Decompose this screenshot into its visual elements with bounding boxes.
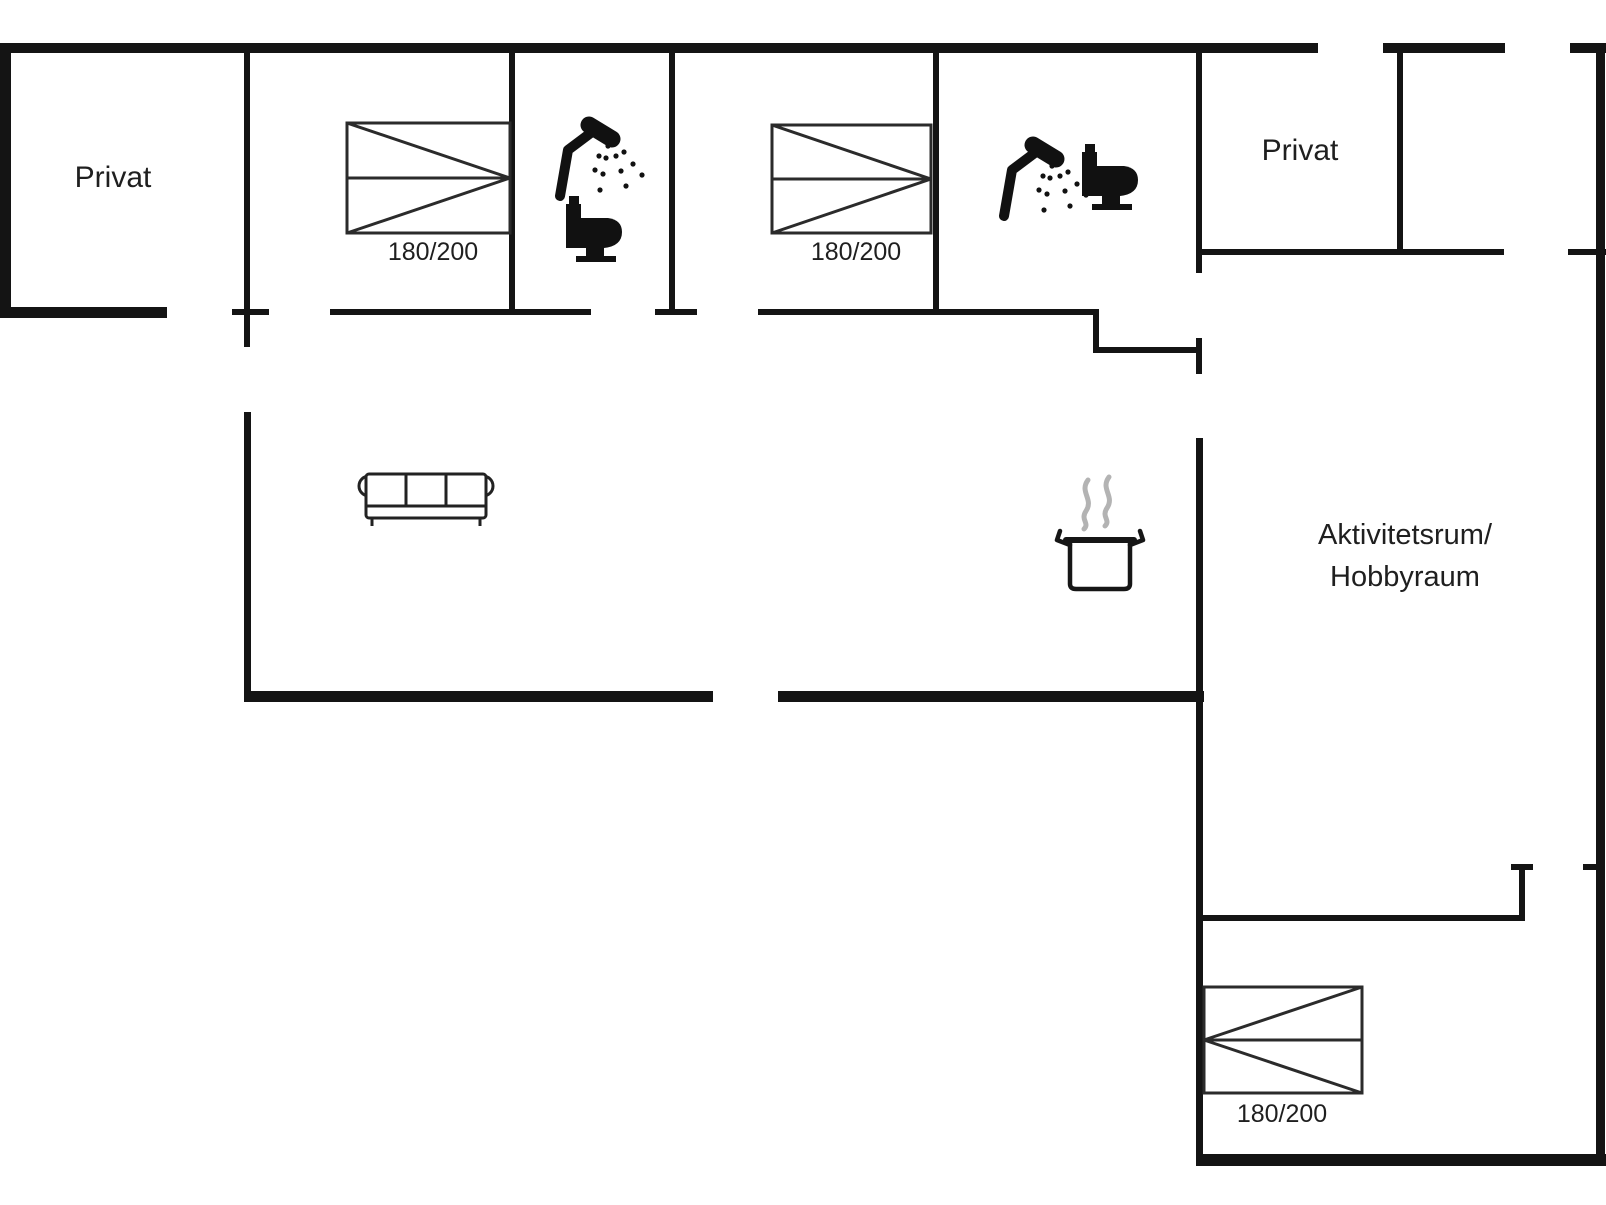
toilet-icon (564, 194, 626, 264)
wall-segment-door-cap-1198 (1196, 338, 1202, 374)
wall-segment-band-bottom-seg1 (330, 309, 591, 315)
room-label-privat-left: Privat (13, 161, 213, 195)
wall-segment-privat-left-bottom-wall (0, 307, 167, 318)
sofa-icon (356, 466, 496, 536)
wall-segment-right-wall-door-tick (1583, 864, 1597, 870)
wall-segment-living-bottom-wall-right (778, 691, 1204, 702)
bed3-size-label: 180/200 (1182, 1100, 1382, 1129)
wall-segment-left-outer-wall (0, 43, 11, 318)
shower-icon (552, 112, 648, 204)
wall-segment-niche-wall-horizontal (1200, 915, 1525, 921)
wall-segment-door-cap-672 (655, 309, 697, 315)
wall-segment-divider-privat1-bed1 (244, 43, 250, 347)
double-bed-icon (345, 121, 513, 235)
wall-segment-niche-wall-vertical (1519, 867, 1525, 921)
wall-segment-living-bottom-wall-left (244, 691, 713, 702)
floor-plan: Privat Privat Aktivitetsrum/ Hobbyraum 1… (0, 0, 1606, 1205)
room-label-activity: Aktivitetsrum/ Hobbyraum (1255, 514, 1555, 598)
wall-segment-step-wall-vertical (1093, 309, 1099, 352)
wall-segment-divider-bath1-bed2 (669, 43, 675, 315)
shower-icon (996, 132, 1092, 224)
wall-segment-band-bottom-seg2 (758, 309, 1098, 315)
room-label-privat-right: Privat (1200, 134, 1400, 168)
wall-segment-living-left-wall (244, 412, 251, 702)
room-label-activity-line2: Hobbyraum (1255, 556, 1555, 598)
bed1-size-label: 180/200 (333, 238, 533, 267)
wall-segment-door-cap-247 (232, 309, 269, 315)
wall-segment-right-outer-wall (1596, 47, 1605, 1160)
wall-segment-privat-right-bottom-wall (1196, 249, 1504, 255)
toilet-icon (1080, 142, 1142, 212)
bed2-size-label: 180/200 (756, 238, 956, 267)
wall-segment-privat-right-bottom-tick (1568, 249, 1606, 255)
room-label-activity-line1: Aktivitetsrum/ (1255, 514, 1555, 556)
wall-segment-wing-bottom-wall (1196, 1154, 1606, 1166)
double-bed-icon (770, 123, 935, 235)
double-bed-icon (1202, 985, 1366, 1095)
wall-segment-niche-wall-cap (1511, 864, 1533, 870)
wall-segment-top-wall-main (0, 43, 1318, 53)
wall-segment-step-wall-horizontal (1093, 347, 1200, 353)
cooking-pot-icon (1046, 472, 1156, 598)
